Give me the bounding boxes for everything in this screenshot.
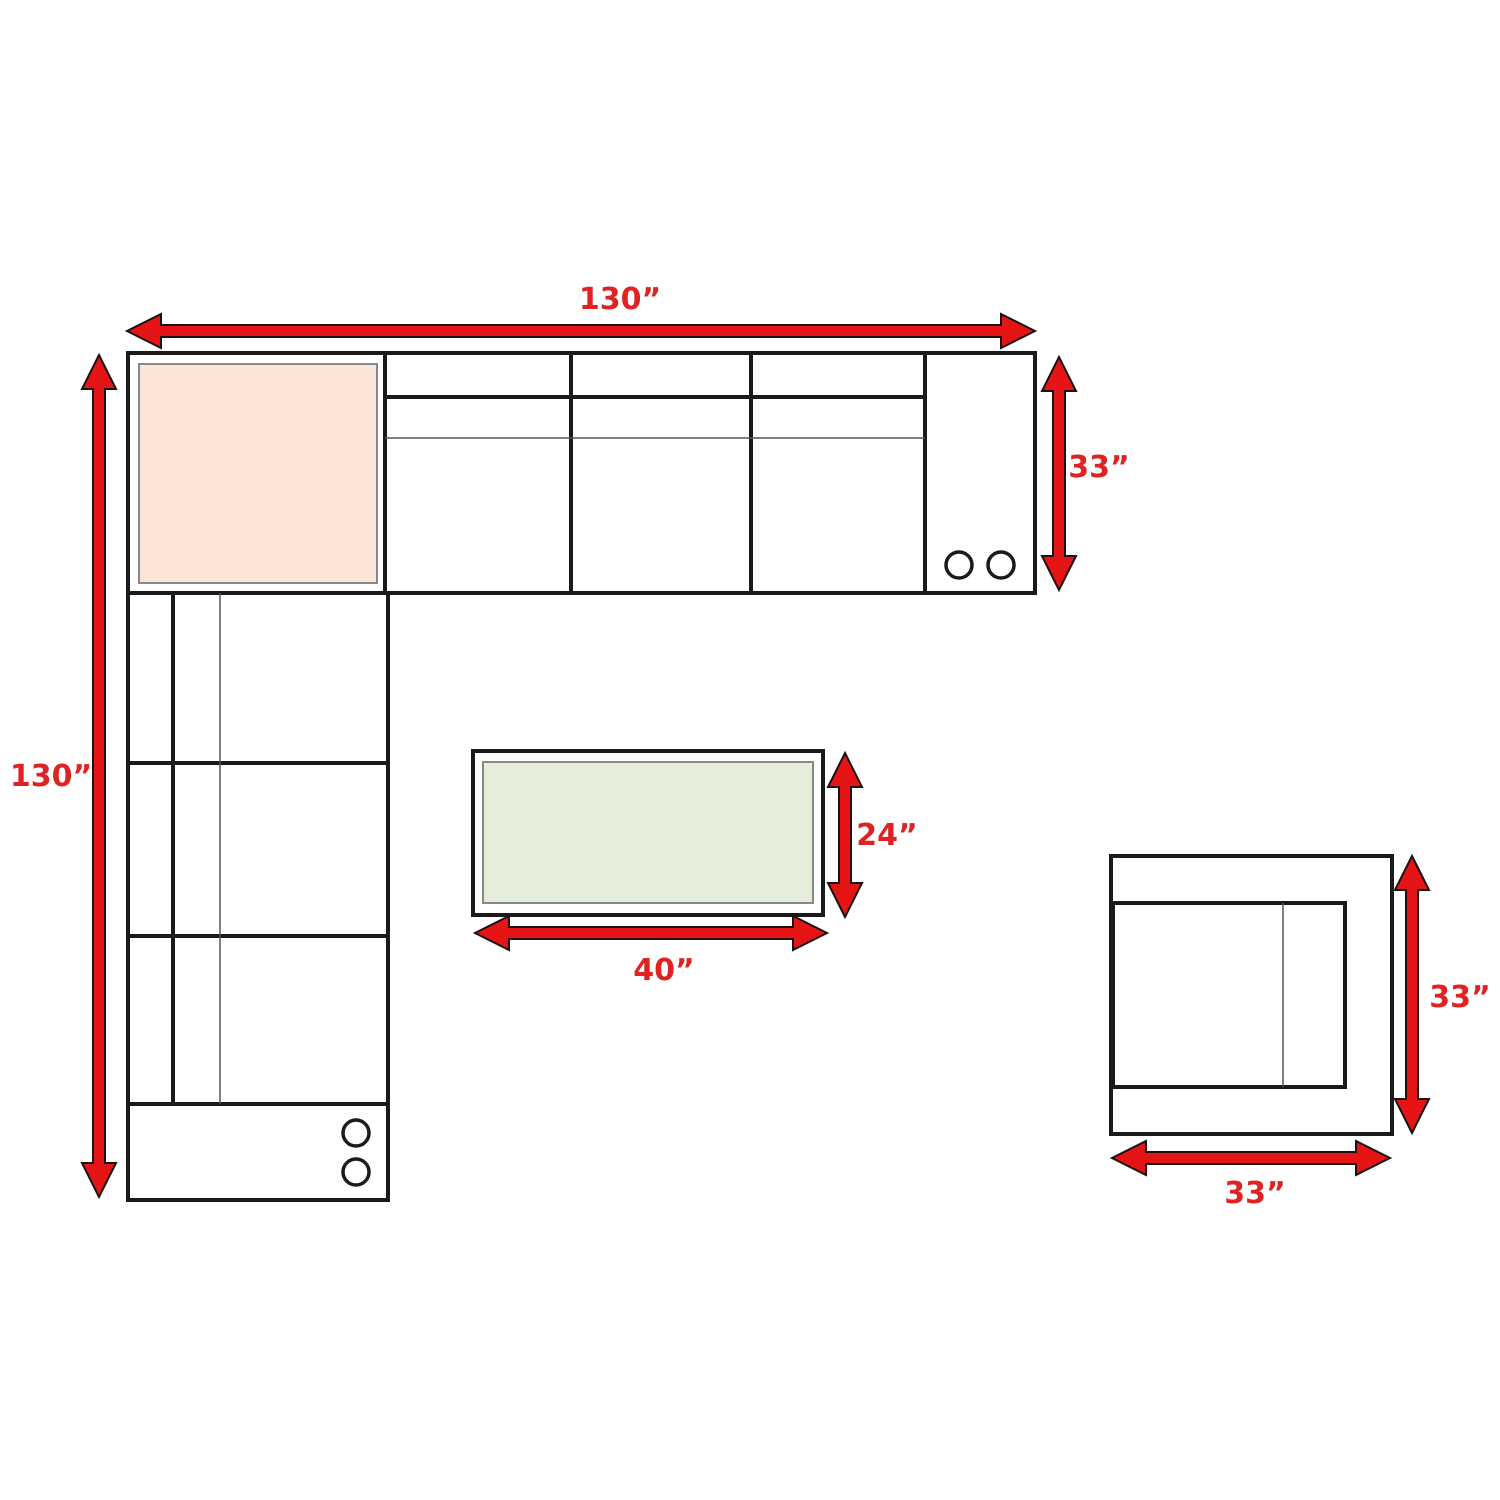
chair-depth-arrow: [1395, 856, 1429, 1133]
sectional-corner-piece: [139, 364, 377, 583]
cup-holder-icon: [343, 1159, 369, 1185]
chair-depth-label: 33”: [1429, 980, 1490, 1015]
sectional-width-label: 130”: [579, 282, 661, 317]
table-width-arrow: [475, 916, 827, 950]
cup-holder-icon: [988, 552, 1014, 578]
sectional-width-arrow: [127, 314, 1035, 348]
cup-holder-icon: [343, 1120, 369, 1146]
sectional-depth-label: 33”: [1068, 450, 1129, 485]
sectional-left-section-outline: [128, 593, 388, 1200]
cup-holder-icon: [946, 552, 972, 578]
table-depth-label: 24”: [856, 818, 917, 853]
floorplan-canvas: 130” 130” 33” 24” 40” 33” 33”: [0, 0, 1500, 1500]
chair-width-label: 33”: [1224, 1176, 1285, 1211]
chair-seat: [1113, 903, 1345, 1087]
table-width-label: 40”: [633, 953, 694, 988]
sectional-height-label: 130”: [10, 759, 92, 794]
coffee-table-top: [483, 762, 813, 903]
chair-width-arrow: [1112, 1141, 1390, 1175]
